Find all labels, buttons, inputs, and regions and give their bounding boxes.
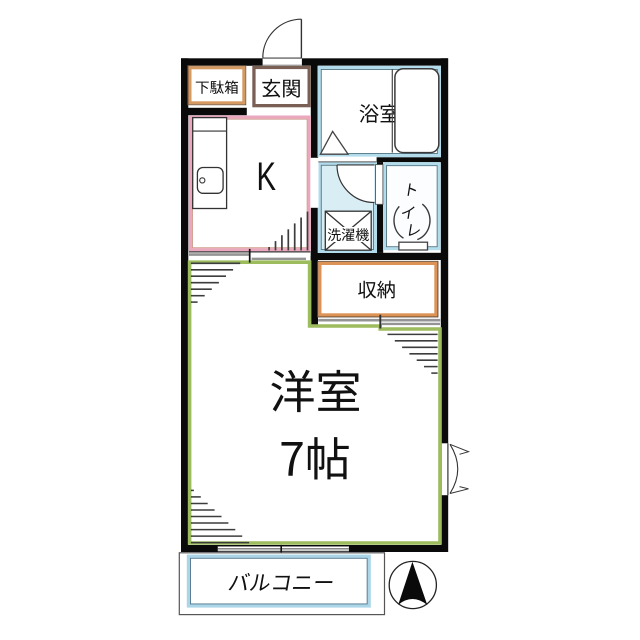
- svg-text:K: K: [257, 155, 277, 199]
